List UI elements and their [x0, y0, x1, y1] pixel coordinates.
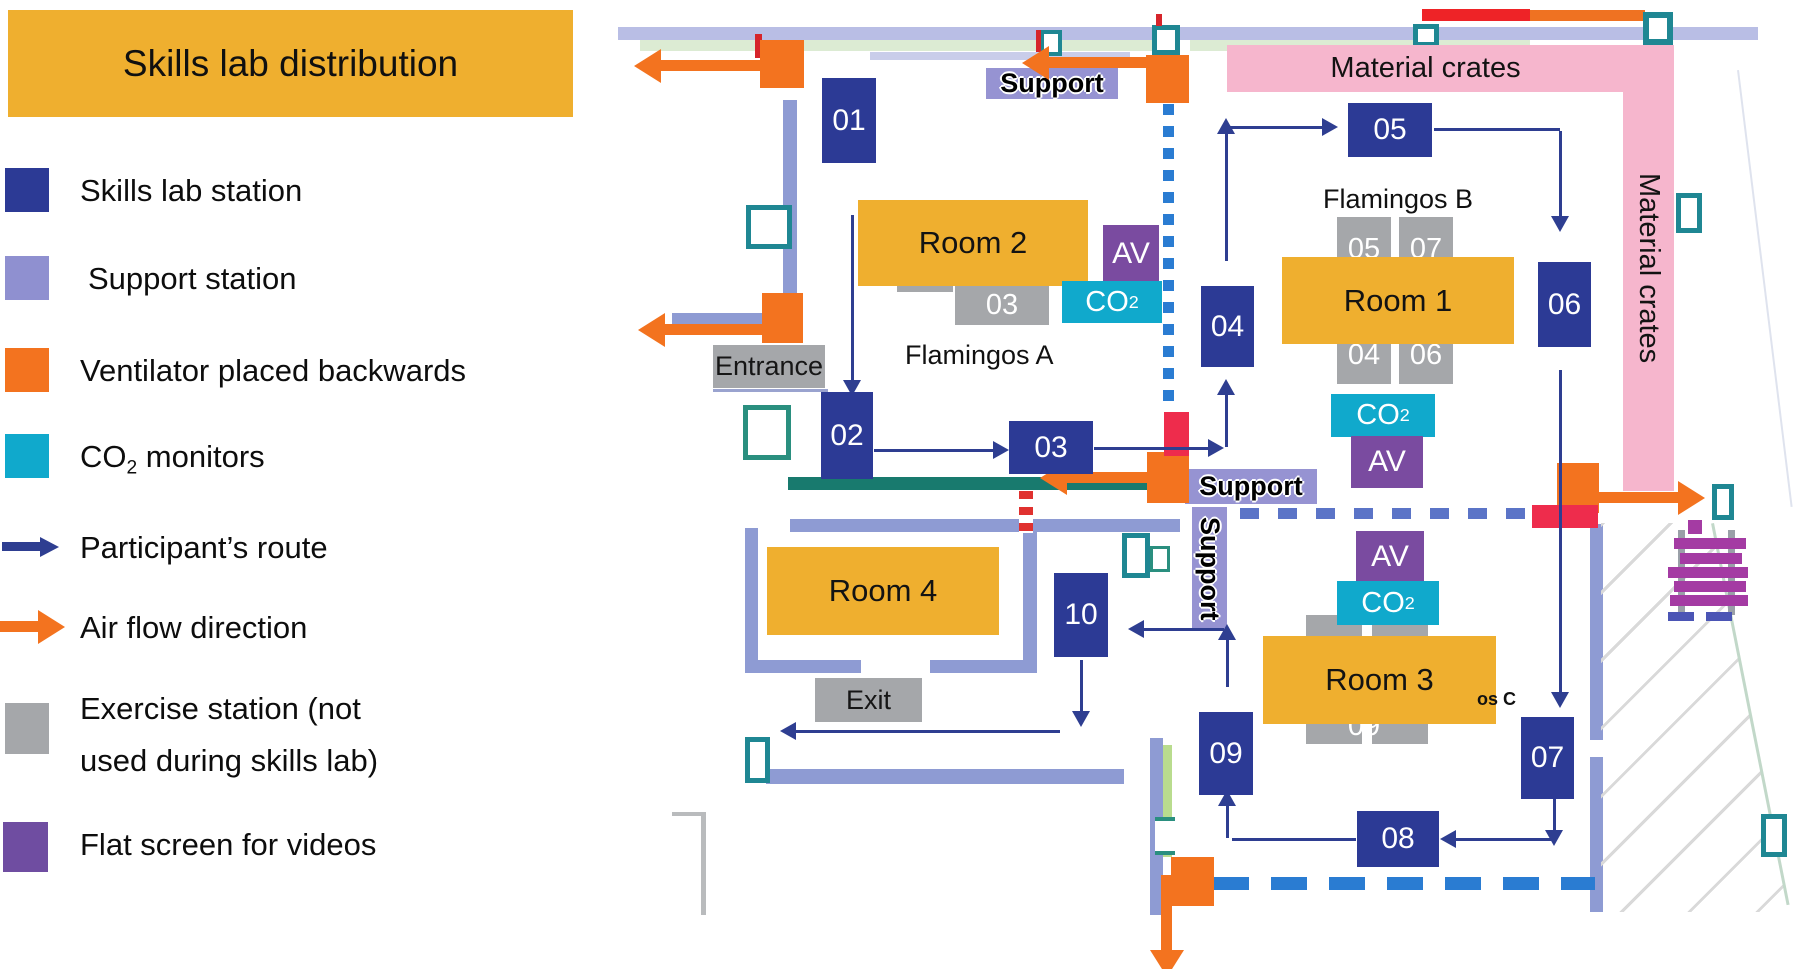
air-flow-arrow-head [1150, 950, 1184, 969]
room-3-label: Room 3 [1263, 636, 1496, 724]
station-01: 01 [822, 78, 876, 163]
support-station-label-vertical: Support [1192, 507, 1227, 631]
fire-post-icon [1019, 491, 1033, 533]
legend-label-flat-screen: Flat screen for videos [80, 827, 376, 863]
route-arrow [851, 215, 854, 385]
exercise-station-03: 03 [955, 285, 1049, 325]
route-arrow [1452, 838, 1552, 841]
air-flow-arrow-head [1678, 481, 1705, 515]
pallet-icon [1674, 581, 1746, 592]
legend-swatch-skills-lab-station [5, 168, 49, 212]
skills-lab-distribution-figure: Skills lab distribution Skills lab stati… [0, 0, 1800, 969]
pallet-icon [1688, 520, 1702, 534]
material-crates-right: Material crates [1623, 45, 1674, 491]
legend-title: Skills lab distribution [8, 10, 573, 117]
route-arrow [1434, 128, 1560, 131]
entrance-label: Entrance [713, 345, 825, 388]
participants-route-arrow-icon [40, 537, 59, 557]
legend-swatch-support-station [5, 256, 49, 300]
pallet-icon [1668, 612, 1694, 621]
legend-label-skills-lab-station: Skills lab station [80, 173, 302, 209]
air-flow-arrow [664, 324, 764, 335]
co2-monitor-room3: CO2 [1337, 581, 1439, 625]
faint-wall-corner [701, 812, 706, 915]
flamingos-c-partial-label: os C [1477, 689, 1516, 710]
room-1-label: Room 1 [1282, 257, 1514, 344]
route-arrow-head [1218, 624, 1236, 640]
station-04: 04 [1201, 286, 1254, 367]
material-crates-top: Material crates [1227, 45, 1624, 92]
legend-label-ventilator: Ventilator placed backwards [80, 353, 466, 389]
route-arrow-head [1072, 711, 1090, 727]
door-icon [1413, 24, 1439, 47]
entrance-threshold-line [713, 389, 828, 392]
station-06: 06 [1538, 262, 1591, 347]
ventilator [760, 40, 804, 88]
route-arrow [1559, 131, 1562, 219]
room4-bottom-wall [745, 660, 861, 673]
bottom-wall [766, 769, 1124, 784]
av-screen-room3: AV [1356, 531, 1424, 583]
door-icon [1761, 814, 1787, 857]
route-arrow-head [1551, 692, 1569, 708]
pallet-icon [1674, 538, 1746, 549]
dashed-divider-bottom [1213, 877, 1595, 890]
air-flow-arrow [660, 60, 760, 71]
room4-left-wall [745, 528, 758, 672]
room4-right-wall [1023, 531, 1037, 673]
pallet-icon [1668, 567, 1748, 578]
legend-label-participants-route: Participant’s route [80, 530, 328, 566]
door-icon [743, 405, 791, 460]
route-arrow [792, 730, 1060, 733]
legend-swatch-flat-screen [3, 822, 48, 872]
air-flow-arrow [1598, 492, 1680, 503]
route-arrow [1228, 126, 1327, 129]
route-arrow [1553, 798, 1556, 834]
air-flow-arrow-head [638, 313, 665, 347]
legend-swatch-exercise-station [5, 703, 49, 754]
route-arrow [1080, 660, 1083, 715]
room-2-label: Room 2 [858, 200, 1088, 286]
pallet-icon [1706, 612, 1732, 621]
route-arrow [874, 449, 996, 452]
air-flow-arrow [1161, 875, 1172, 953]
pallet-icon [1670, 595, 1748, 606]
legend-label-support-station: Support station [88, 261, 297, 297]
room4-bottom-wall [930, 660, 1036, 673]
legend-swatch-co2-monitors [5, 434, 49, 478]
legend-airflow-arrow-shaft [0, 621, 40, 632]
route-arrow-head [1217, 379, 1235, 395]
station-03: 03 [1009, 421, 1093, 474]
dashed-divider-middle [1240, 508, 1532, 519]
co2-monitor-room2: CO2 [1062, 281, 1162, 323]
room-4-label: Room 4 [767, 547, 999, 635]
exit-label: Exit [815, 678, 922, 722]
legend-label-exercise-line1: Exercise station (not [80, 691, 361, 727]
legend-label-air-flow: Air flow direction [80, 610, 307, 646]
door-icon [745, 737, 770, 783]
route-arrow [1140, 628, 1224, 631]
door-icon [1643, 12, 1673, 45]
route-arrow-head [1551, 216, 1569, 232]
pallet-icon [1680, 553, 1742, 564]
route-arrow-head [1322, 118, 1338, 136]
route-arrow-head [993, 441, 1009, 459]
route-arrow [1559, 370, 1562, 695]
door-icon [1152, 25, 1180, 55]
route-arrow-head [1208, 439, 1224, 457]
door-icon [746, 205, 792, 249]
dotted-divider-vertical [1163, 104, 1174, 412]
flamingos-a-label: Flamingos A [905, 340, 1054, 371]
door-icon [1122, 533, 1150, 578]
legend-swatch-ventilator [5, 348, 49, 392]
door-red-tick [1156, 14, 1162, 26]
station-07: 07 [1521, 717, 1574, 799]
route-arrow-head [1440, 830, 1456, 848]
left-wall [783, 100, 797, 298]
station-09: 09 [1199, 712, 1253, 795]
route-arrow [1226, 634, 1229, 687]
route-arrow [1225, 128, 1228, 261]
route-arrow [1232, 838, 1356, 841]
route-arrow [1225, 389, 1228, 447]
ventilator [1147, 452, 1189, 503]
ventilator [1171, 857, 1214, 906]
ventilator [762, 293, 803, 343]
door-icon [1150, 546, 1170, 572]
door-icon [1712, 484, 1734, 520]
ventilator [1146, 55, 1189, 103]
red-marker [1532, 505, 1598, 528]
station-08: 08 [1357, 811, 1439, 867]
legend-label-exercise-line2: used during skills lab) [80, 743, 378, 779]
door-icon [1676, 193, 1702, 233]
air-flow-arrow [1048, 57, 1147, 68]
air-flow-arrow-head [1022, 46, 1049, 80]
av-screen-room1: AV [1351, 436, 1423, 488]
route-arrow-head [1128, 620, 1144, 638]
route-arrow [1094, 447, 1212, 450]
support-station-label-top: Support [986, 68, 1118, 99]
station-10: 10 [1054, 573, 1108, 657]
air-flow-arrow-head [634, 49, 661, 83]
station-05: 05 [1348, 103, 1432, 157]
top-red-bar [1422, 9, 1530, 21]
air-flow-arrow-icon [38, 610, 65, 644]
support-station-label-mid: Support [1185, 469, 1317, 504]
station-02: 02 [821, 392, 873, 479]
top-wall [618, 27, 1758, 40]
av-screen-room2: AV [1103, 225, 1159, 282]
slanted-boundary-line [1737, 70, 1793, 507]
co2-monitor-room1: CO2 [1331, 394, 1435, 437]
flamingos-b-label: Flamingos B [1323, 184, 1473, 215]
legend-label-co2-monitors: CO2 monitors [80, 439, 265, 480]
top-orange-bar [1530, 10, 1645, 21]
legend-route-arrow-shaft [2, 542, 42, 551]
door-gap [1155, 817, 1175, 855]
top-wall-green-strip [640, 40, 1160, 51]
route-arrow-head [780, 722, 796, 740]
corridor-wall [790, 519, 1180, 532]
